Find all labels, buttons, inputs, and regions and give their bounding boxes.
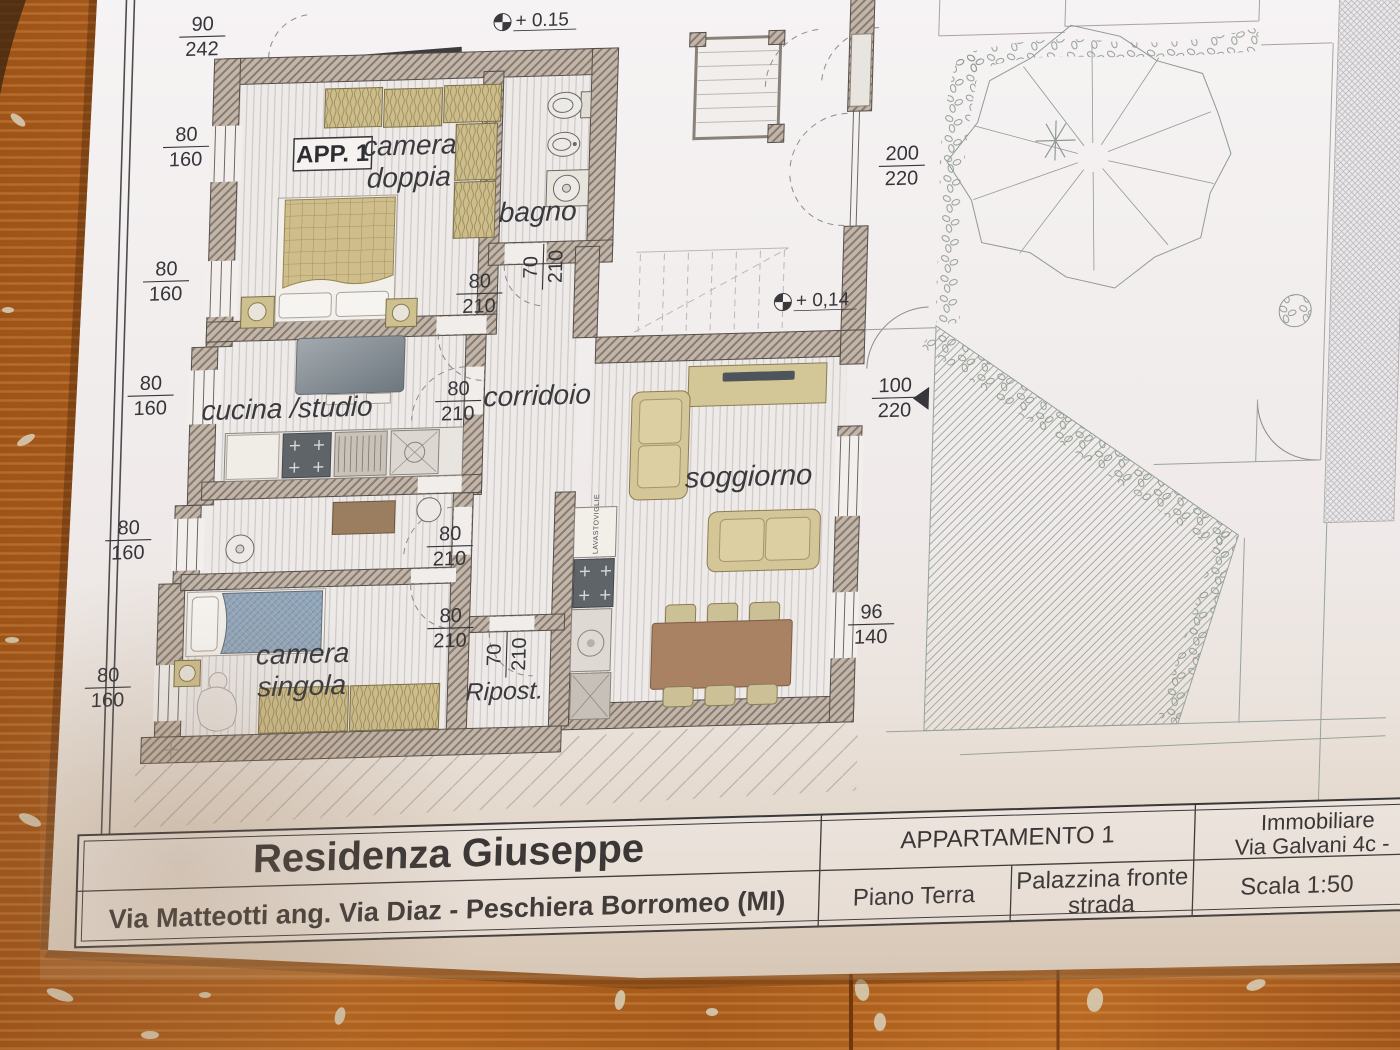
- svg-text:80: 80: [447, 378, 470, 401]
- sofa-vertical: [629, 391, 690, 501]
- warm-overlay: [40, 700, 1400, 980]
- svg-text:80: 80: [468, 270, 491, 293]
- washer-table: [332, 501, 395, 535]
- svg-text:220: 220: [878, 399, 912, 422]
- unit-label: APP. 1: [296, 140, 370, 169]
- svg-text:90: 90: [191, 13, 214, 36]
- screenshot-root: LAVASTOVIGLIE APP. 1: [0, 0, 1400, 1050]
- kitchen-column: LAVASTOVIGLIE: [569, 493, 618, 719]
- fridge: [226, 434, 279, 479]
- wardrobe: [383, 88, 442, 128]
- svg-text:210: 210: [462, 295, 496, 318]
- svg-text:80: 80: [155, 258, 178, 281]
- nightstand: [385, 298, 417, 327]
- svg-text:80: 80: [439, 523, 462, 546]
- svg-text:100: 100: [878, 374, 912, 397]
- dining-table: [650, 620, 792, 690]
- floor-plan-photo: LAVASTOVIGLIE APP. 1: [0, 0, 1400, 1050]
- svg-text:+ 0,14: + 0,14: [796, 289, 850, 311]
- oven: [334, 431, 387, 476]
- svg-text:80: 80: [175, 124, 198, 147]
- svg-text:210: 210: [545, 249, 568, 283]
- wardrobe: [455, 123, 498, 180]
- tv-cabinet: [688, 363, 827, 407]
- dining-set: [650, 602, 793, 708]
- svg-text:140: 140: [854, 626, 888, 649]
- wardrobe: [324, 87, 382, 128]
- svg-text:200: 200: [885, 142, 919, 165]
- svg-text:160: 160: [133, 397, 167, 420]
- kitchen-counter: [224, 427, 463, 482]
- svg-text:242: 242: [185, 38, 219, 61]
- svg-text:96: 96: [860, 601, 883, 624]
- window: [209, 125, 243, 182]
- svg-text:80: 80: [140, 372, 163, 395]
- room-label-cucina-studio: cucina /studio: [201, 390, 373, 426]
- svg-text:210: 210: [432, 548, 466, 571]
- cooktop: [573, 559, 614, 608]
- sofa-horizontal: [707, 509, 821, 572]
- svg-text:160: 160: [169, 148, 203, 171]
- svg-text:+ 0.15: + 0.15: [515, 9, 569, 31]
- double-bed: [275, 195, 398, 322]
- wardrobe: [453, 181, 496, 238]
- svg-text:160: 160: [149, 283, 183, 306]
- entry-sidelight: [850, 34, 872, 107]
- svg-text:70: 70: [483, 643, 506, 666]
- room-label-soggiorno: soggiorno: [685, 459, 813, 495]
- window: [171, 518, 205, 571]
- svg-text:210: 210: [441, 403, 475, 426]
- svg-text:210: 210: [508, 637, 531, 671]
- svg-text:160: 160: [111, 542, 145, 565]
- svg-text:220: 220: [884, 167, 918, 190]
- wardrobe: [444, 84, 502, 123]
- window: [205, 260, 239, 317]
- unit-tag: APP. 1: [293, 137, 372, 171]
- svg-text:70: 70: [520, 256, 543, 279]
- desk: [296, 336, 406, 395]
- svg-text:80: 80: [117, 517, 140, 540]
- room-label-corridoio: corridoio: [483, 378, 591, 412]
- cooktop: [282, 433, 331, 478]
- room-label-bagno: bagno: [498, 195, 577, 228]
- window: [833, 436, 863, 517]
- nightstand: [241, 296, 275, 328]
- toilet: [548, 92, 592, 119]
- room-label-camera-doppia: cameradoppia: [362, 128, 457, 194]
- svg-text:210: 210: [433, 630, 467, 653]
- svg-text:80: 80: [439, 605, 462, 628]
